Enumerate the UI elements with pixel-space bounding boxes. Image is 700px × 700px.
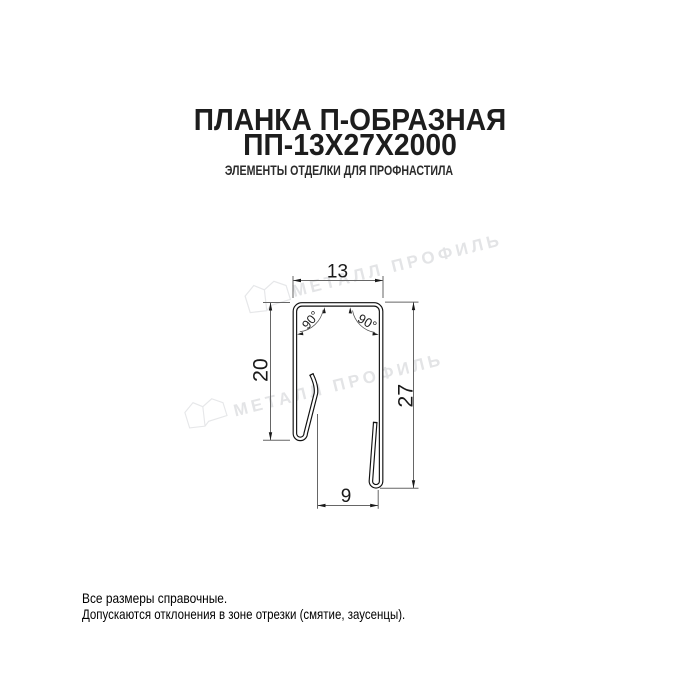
svg-text:13: 13 bbox=[327, 262, 348, 283]
svg-text:90°: 90° bbox=[355, 311, 379, 334]
svg-text:МЕТАЛЛ ПРОФИЛЬ: МЕТАЛЛ ПРОФИЛЬ bbox=[290, 231, 500, 301]
svg-text:27: 27 bbox=[393, 384, 417, 408]
svg-text:9: 9 bbox=[341, 486, 352, 507]
svg-text:90°: 90° bbox=[299, 308, 322, 332]
svg-text:20: 20 bbox=[249, 358, 273, 382]
